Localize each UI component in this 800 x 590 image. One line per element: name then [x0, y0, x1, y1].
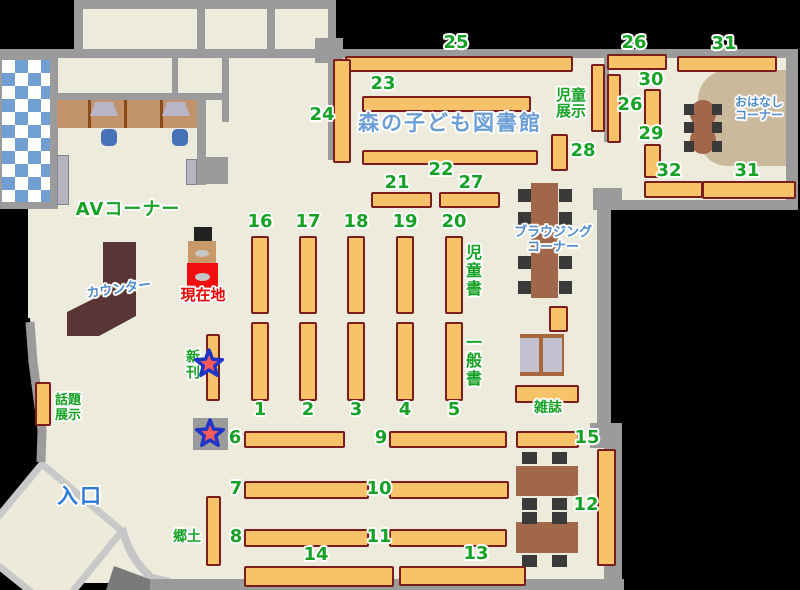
chair: [522, 498, 537, 510]
children-books-label: 児童書: [464, 244, 480, 306]
shelf-5-label: 5: [448, 401, 461, 419]
shelf-23: [362, 96, 531, 112]
shelf-3-label: 3: [350, 401, 363, 419]
shelf-21: [371, 192, 432, 208]
shelf-6-label: 6: [229, 429, 242, 447]
shelf-local-history: [206, 496, 221, 566]
chair: [522, 452, 537, 464]
magazines-label: 雑誌: [534, 401, 562, 415]
reading-table: [516, 522, 578, 553]
shelf-16-label: 16: [247, 213, 272, 231]
av-corner-label: AVコーナー: [76, 201, 181, 219]
shelf-26-label: 26: [617, 96, 642, 114]
shelf-16: [251, 236, 269, 314]
shelf-19-label: 19: [392, 213, 417, 231]
shelf-32: [644, 181, 703, 198]
wall: [197, 8, 205, 50]
shelf-27-label: 27: [458, 174, 483, 192]
shelf-19: [396, 236, 414, 314]
shelf-17: [299, 236, 317, 314]
wall: [172, 58, 178, 94]
shelf-25: [345, 56, 573, 72]
topic-display-label: 話題: [55, 394, 81, 407]
shelf-9: [389, 431, 507, 448]
library-floor-map: 25 26 31 23 24 30 26 29 28 32 31 22 21 2…: [0, 0, 800, 590]
shelf-12-label: 12: [573, 496, 598, 514]
wall: [198, 157, 228, 184]
shelf-5: [445, 322, 463, 401]
shelf-28-label: 28: [570, 142, 595, 160]
shelf-20: [445, 236, 463, 314]
local-history-label: 郷土: [173, 530, 201, 544]
shelf-4: [396, 322, 414, 401]
shelf-small: [549, 306, 568, 332]
shelf-10-label: 10: [366, 480, 391, 498]
shelf-31-bottom: [702, 181, 796, 199]
shelf-14: [244, 566, 394, 587]
shelf-15-label: 15: [574, 429, 599, 447]
shelf-26-top: [607, 54, 667, 70]
back-room: [205, 8, 267, 50]
shelf-24-label: 24: [309, 106, 334, 124]
shelf-18: [347, 236, 365, 314]
reading-table: [516, 466, 578, 496]
desk-divider: [160, 100, 163, 128]
shelf-29-label: 29: [638, 125, 663, 143]
children-display-label: 児童: [556, 88, 586, 103]
shelf-31-bottom-label: 31: [734, 162, 759, 180]
shelf-21-label: 21: [384, 174, 409, 192]
chair: [518, 212, 531, 225]
shelf-7: [244, 481, 369, 499]
chair: [518, 256, 531, 269]
shelf-25-label: 25: [443, 34, 468, 52]
chair: [559, 256, 572, 269]
shelf-11: [389, 529, 507, 547]
shelf-2-label: 2: [302, 401, 315, 419]
desk-divider: [124, 100, 127, 128]
shelf-9-label: 9: [375, 429, 388, 447]
shelf-31-top-label: 31: [711, 35, 736, 53]
chair: [559, 189, 572, 202]
story-corner-label: コーナー: [735, 109, 783, 121]
chair: [552, 498, 567, 510]
chair: [559, 281, 572, 294]
shelf-10: [389, 481, 509, 499]
study-carrel: [543, 338, 562, 372]
door: [186, 159, 197, 185]
shelf-18-label: 18: [343, 213, 368, 231]
shelf-11-label: 11: [366, 528, 391, 546]
chair: [552, 452, 567, 464]
chair: [684, 104, 694, 115]
shelf-12: [597, 449, 616, 566]
shelf-2: [299, 322, 317, 401]
shelf-topic-display: [35, 382, 51, 426]
browsing-corner-label: ブラウジング: [514, 226, 592, 239]
chair: [712, 122, 722, 133]
shelf-17-label: 17: [295, 213, 320, 231]
shelf-4-label: 4: [399, 401, 412, 419]
shelf-13-label: 13: [463, 545, 488, 563]
shelf-28: [551, 134, 568, 171]
wall: [74, 0, 83, 52]
shelf-20-label: 20: [441, 213, 466, 231]
marker-detail: [195, 273, 210, 281]
wall: [597, 208, 611, 430]
shelf-8-label: 8: [230, 528, 243, 546]
shelf-1: [251, 322, 269, 401]
checkered-floor: [0, 58, 52, 204]
chair: [552, 512, 567, 524]
wall: [267, 8, 275, 50]
chair: [684, 141, 694, 152]
chair: [101, 129, 117, 146]
shelf-22-label: 22: [428, 161, 453, 179]
door: [57, 155, 69, 205]
current-location-label: 現在地: [180, 288, 225, 303]
shelf-32-label: 32: [656, 162, 681, 180]
desk-divider: [88, 100, 91, 128]
back-room: [83, 8, 197, 50]
general-books-label: 一般書: [464, 334, 480, 396]
shelf-new-books: [206, 334, 220, 401]
study-carrel: [520, 338, 539, 372]
map-title: 森の子ども図書館: [358, 113, 542, 134]
chair: [684, 122, 694, 133]
shelf-26-left: [591, 64, 605, 132]
shelf-15: [516, 431, 579, 448]
chair: [559, 212, 572, 225]
wall: [222, 58, 229, 122]
chair: [712, 104, 722, 115]
you-are-here-marker: [194, 227, 212, 241]
shelf-24: [333, 59, 351, 163]
wall: [74, 0, 336, 9]
story-corner-label: おはなし: [735, 96, 783, 108]
chair: [522, 512, 537, 524]
display-stand: [193, 418, 228, 450]
chair: [172, 129, 188, 146]
shelf-6: [244, 431, 345, 448]
shelf-1-label: 1: [254, 401, 267, 419]
wall: [608, 200, 798, 210]
shelf-7-label: 7: [230, 480, 243, 498]
shelf-30-label: 30: [638, 71, 663, 89]
browsing-corner-label: コーナー: [527, 241, 579, 254]
shelf-14-label: 14: [303, 546, 328, 564]
chair: [518, 281, 531, 294]
children-display-label: 展示: [556, 104, 586, 119]
topic-display-label: 展示: [55, 409, 81, 422]
new-books-label: 新刊: [185, 349, 199, 395]
chair: [552, 555, 567, 567]
chair: [712, 141, 722, 152]
chair: [518, 189, 531, 202]
shelf-23-label: 23: [370, 75, 395, 93]
wall: [0, 202, 58, 209]
marker-detail: [195, 250, 209, 257]
shelf-3: [347, 322, 365, 401]
entrance-label: 入口: [57, 486, 103, 507]
shelf-31-top: [677, 56, 777, 72]
shelf-27: [439, 192, 500, 208]
shelf-26-top-label: 26: [621, 34, 646, 52]
shelf-13: [399, 566, 526, 586]
